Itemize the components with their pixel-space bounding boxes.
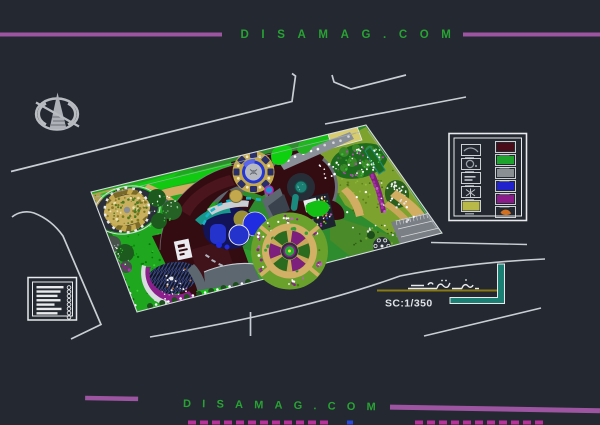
svg-text:DISAMAG.COM: DISAMAG.COM xyxy=(241,29,464,41)
svg-text:DISAMAG.COM: DISAMAG.COM xyxy=(183,398,387,414)
svg-text:SC:1/350: SC:1/350 xyxy=(385,298,433,310)
